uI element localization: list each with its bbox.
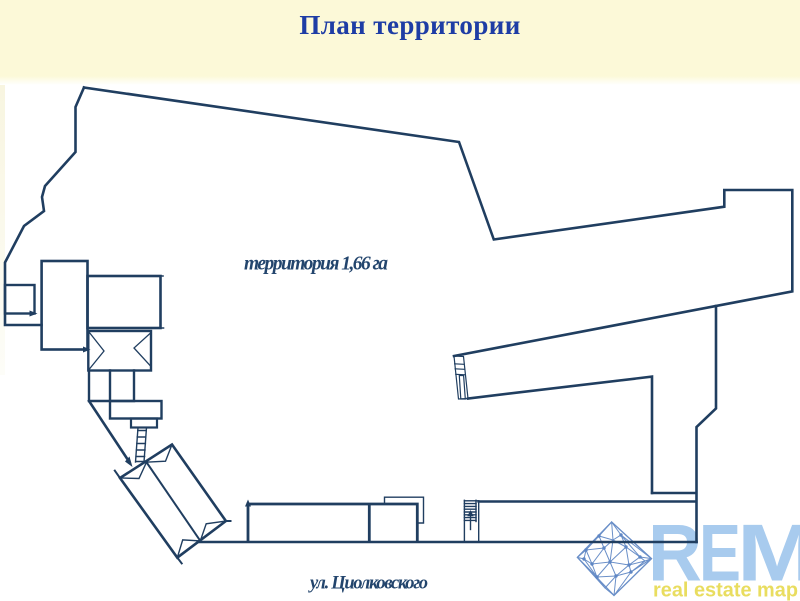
- svg-text:территория 1,66 га: территория 1,66 га: [244, 254, 388, 275]
- svg-text:ул. Циолковского: ул. Циолковского: [308, 574, 428, 594]
- svg-text:real estate map: real estate map: [653, 579, 798, 601]
